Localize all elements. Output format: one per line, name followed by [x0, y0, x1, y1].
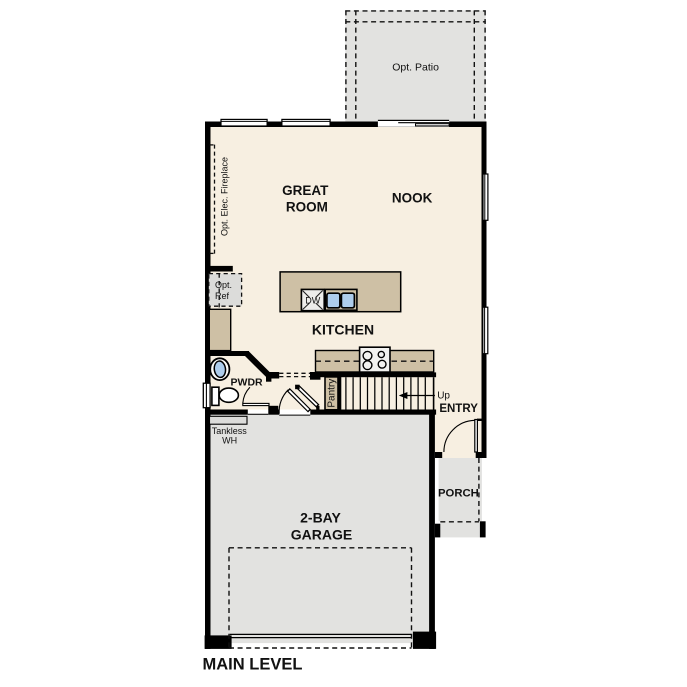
svg-text:NOOK: NOOK	[392, 190, 433, 205]
svg-text:Ref: Ref	[215, 291, 230, 301]
svg-text:KITCHEN: KITCHEN	[312, 321, 374, 337]
svg-text:PWDR: PWDR	[231, 376, 263, 388]
svg-text:Opt. Patio: Opt. Patio	[392, 62, 439, 74]
svg-text:Up: Up	[437, 390, 450, 401]
svg-text:ENTRY: ENTRY	[439, 403, 478, 415]
svg-text:Opt.: Opt.	[215, 280, 232, 290]
svg-text:WH: WH	[222, 436, 237, 446]
svg-text:ROOM: ROOM	[286, 199, 328, 214]
svg-text:PORCH: PORCH	[438, 488, 479, 500]
svg-text:Pantry: Pantry	[327, 379, 338, 408]
svg-text:GREAT: GREAT	[282, 183, 329, 198]
svg-text:Tankless: Tankless	[212, 426, 248, 436]
svg-text:GARAGE: GARAGE	[291, 526, 352, 542]
svg-text:DW: DW	[305, 295, 320, 305]
svg-text:Opt. Elec. Fireplace: Opt. Elec. Fireplace	[219, 157, 229, 236]
svg-text:2-BAY: 2-BAY	[300, 509, 341, 525]
svg-text:MAIN LEVEL: MAIN LEVEL	[203, 656, 303, 674]
